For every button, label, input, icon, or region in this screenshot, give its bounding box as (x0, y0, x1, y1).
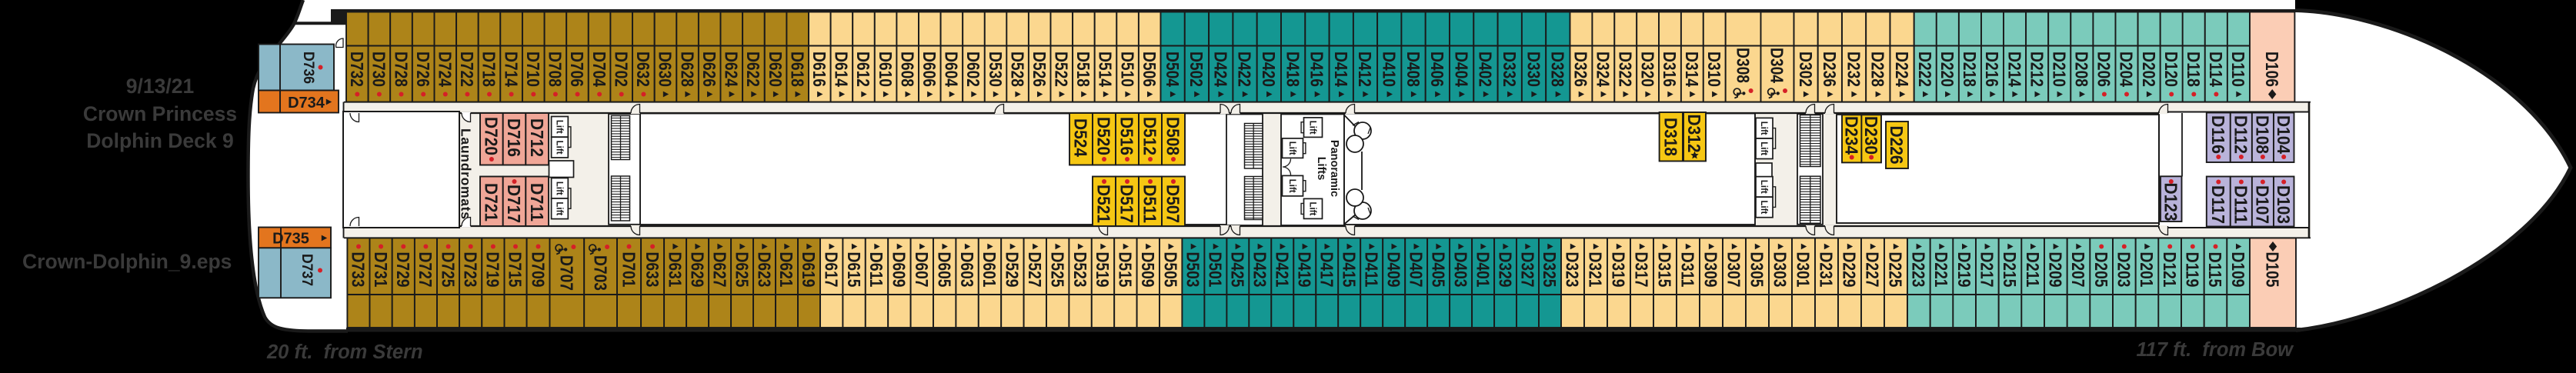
svg-text:D632: D632 (633, 52, 653, 87)
svg-text:D716: D716 (504, 118, 524, 157)
svg-text:D518: D518 (1073, 52, 1093, 87)
svg-text:D305: D305 (1747, 252, 1767, 288)
svg-text:D401: D401 (1473, 252, 1493, 288)
svg-text:D105: D105 (2263, 252, 2283, 288)
svg-text:D204: D204 (2117, 52, 2137, 87)
svg-text:D208: D208 (2072, 52, 2092, 87)
svg-text:D303: D303 (1770, 252, 1790, 288)
svg-text:D227: D227 (1863, 252, 1883, 288)
svg-text:D320: D320 (1637, 52, 1657, 87)
svg-text:D106: D106 (2262, 52, 2282, 87)
svg-text:D109: D109 (2228, 252, 2248, 288)
svg-text:D517: D517 (1117, 185, 1137, 223)
svg-text:D324: D324 (1593, 52, 1613, 87)
svg-text:D322: D322 (1615, 52, 1635, 87)
svg-text:D630: D630 (656, 52, 676, 87)
svg-text:D220: D220 (1937, 52, 1957, 87)
svg-text:D236: D236 (1820, 52, 1840, 87)
svg-text:D307: D307 (1724, 252, 1744, 288)
svg-text:D312: D312 (1684, 115, 1704, 153)
svg-text:D225: D225 (1886, 252, 1906, 288)
svg-text:D326: D326 (1571, 52, 1591, 87)
svg-text:D514: D514 (1096, 52, 1116, 87)
svg-text:D215: D215 (2000, 252, 2020, 288)
svg-text:D628: D628 (677, 52, 697, 87)
svg-text:D707: D707 (557, 255, 577, 291)
svg-text:D727: D727 (415, 252, 435, 288)
svg-text:D512: D512 (1140, 117, 1160, 155)
svg-text:D717: D717 (504, 185, 524, 223)
svg-text:D606: D606 (919, 52, 939, 87)
svg-text:D229: D229 (1840, 252, 1860, 288)
svg-text:D119: D119 (2183, 252, 2203, 288)
svg-text:D629: D629 (687, 252, 707, 288)
svg-text:D405: D405 (1428, 252, 1448, 288)
svg-text:D403: D403 (1450, 252, 1470, 288)
svg-text:D221: D221 (1931, 252, 1951, 288)
svg-text:D108: D108 (2253, 115, 2273, 154)
svg-text:D118: D118 (2184, 52, 2204, 87)
svg-text:D419: D419 (1295, 252, 1315, 288)
svg-text:D612: D612 (853, 52, 873, 87)
svg-text:D117: D117 (2208, 185, 2228, 224)
svg-text:D710: D710 (523, 52, 543, 87)
svg-text:D311: D311 (1678, 252, 1698, 288)
svg-text:D402: D402 (1476, 52, 1496, 87)
svg-text:D406: D406 (1427, 52, 1447, 87)
svg-text:D620: D620 (766, 52, 786, 87)
svg-text:D528: D528 (1007, 52, 1027, 87)
svg-text:D314: D314 (1682, 52, 1702, 87)
svg-text:D724: D724 (435, 52, 455, 87)
svg-text:D524: D524 (1071, 118, 1091, 157)
svg-text:D619: D619 (799, 252, 819, 288)
svg-text:D212: D212 (2027, 52, 2047, 87)
svg-text:Lifts: Lifts (1315, 157, 1327, 181)
svg-text:D607: D607 (912, 252, 932, 288)
svg-text:D424: D424 (1211, 52, 1231, 87)
svg-text:D723: D723 (460, 252, 480, 288)
svg-text:D210: D210 (2050, 52, 2070, 87)
svg-text:D718: D718 (479, 52, 499, 87)
svg-text:D614: D614 (832, 52, 852, 87)
svg-text:D526: D526 (1029, 52, 1049, 87)
svg-text:Lift: Lift (1287, 179, 1296, 193)
svg-text:D622: D622 (743, 52, 763, 87)
svg-text:D216: D216 (1982, 52, 2002, 87)
svg-text:D726: D726 (413, 52, 433, 87)
svg-text:D327: D327 (1517, 252, 1537, 288)
svg-text:D617: D617 (821, 252, 841, 288)
svg-text:D529: D529 (1003, 252, 1023, 288)
svg-text:Lift: Lift (1287, 142, 1296, 155)
svg-text:D111: D111 (2231, 185, 2251, 224)
svg-text:D115: D115 (2205, 252, 2225, 288)
svg-text:D729: D729 (393, 252, 413, 288)
svg-text:D209: D209 (2046, 252, 2066, 288)
svg-text:9/13/21: 9/13/21 (126, 75, 194, 98)
svg-text:D715: D715 (506, 252, 526, 288)
svg-text:D218: D218 (1960, 52, 1980, 87)
svg-text:D626: D626 (699, 52, 719, 87)
svg-text:D602: D602 (963, 52, 983, 87)
svg-text:Lift: Lift (1759, 122, 1768, 135)
svg-text:D330: D330 (1523, 52, 1543, 87)
svg-text:D414: D414 (1331, 52, 1351, 87)
svg-text:D621: D621 (776, 252, 796, 288)
svg-text:D112: D112 (2231, 115, 2251, 154)
svg-text:D603: D603 (957, 252, 977, 288)
svg-text:D520: D520 (1094, 117, 1114, 155)
svg-text:D633: D633 (642, 252, 662, 288)
svg-text:D107: D107 (2253, 185, 2273, 224)
svg-text:D110: D110 (2228, 52, 2248, 87)
svg-text:D409: D409 (1383, 252, 1403, 288)
svg-text:D232: D232 (1844, 52, 1864, 87)
svg-text:D502: D502 (1186, 52, 1206, 87)
svg-text:D709: D709 (528, 252, 548, 288)
svg-text:D116: D116 (2208, 115, 2228, 154)
svg-text:D302: D302 (1796, 52, 1816, 87)
svg-text:D711: D711 (527, 183, 547, 221)
svg-text:D507: D507 (1163, 185, 1183, 223)
svg-text:D737: D737 (299, 254, 315, 286)
svg-text:D719: D719 (483, 252, 503, 288)
svg-text:D523: D523 (1070, 252, 1090, 288)
svg-text:D318: D318 (1661, 118, 1681, 156)
svg-text:D234: D234 (1841, 116, 1861, 155)
svg-text:D505: D505 (1160, 252, 1180, 288)
svg-text:D418: D418 (1283, 52, 1303, 87)
svg-text:D732: D732 (347, 52, 367, 87)
svg-text:Lift: Lift (554, 201, 563, 215)
svg-text:D422: D422 (1235, 52, 1255, 87)
svg-text:Lift: Lift (554, 141, 563, 155)
svg-text:D704: D704 (589, 52, 609, 87)
svg-text:20 ft. from Stern: 20 ft. from Stern (266, 341, 423, 363)
svg-text:D203: D203 (2114, 252, 2134, 288)
svg-text:D510: D510 (1117, 52, 1137, 87)
svg-text:D521: D521 (1094, 185, 1114, 223)
svg-text:D516: D516 (1117, 117, 1137, 155)
svg-text:D527: D527 (1025, 252, 1045, 288)
svg-text:D722: D722 (457, 52, 477, 87)
svg-text:D226: D226 (1887, 126, 1907, 165)
svg-text:D321: D321 (1586, 252, 1606, 288)
svg-text:D224: D224 (1892, 52, 1912, 87)
svg-text:D230: D230 (1861, 116, 1881, 155)
svg-text:D304: D304 (1767, 48, 1787, 83)
svg-text:D415: D415 (1339, 252, 1359, 288)
svg-text:Lift: Lift (554, 120, 563, 134)
svg-text:D712: D712 (527, 118, 547, 157)
svg-text:D525: D525 (1047, 252, 1067, 288)
svg-text:D123: D123 (2161, 183, 2181, 221)
svg-text:D610: D610 (876, 52, 896, 87)
svg-text:D120: D120 (2161, 52, 2181, 87)
svg-text:D316: D316 (1660, 52, 1680, 87)
svg-text:Panoramic: Panoramic (1328, 140, 1340, 197)
svg-text:D207: D207 (2068, 252, 2088, 288)
svg-text:D511: D511 (1140, 185, 1160, 223)
svg-text:D608: D608 (897, 52, 917, 87)
svg-text:D417: D417 (1317, 252, 1337, 288)
svg-text:D310: D310 (1704, 52, 1724, 87)
svg-text:D701: D701 (619, 252, 639, 288)
svg-text:D501: D501 (1206, 252, 1226, 288)
svg-text:D708: D708 (546, 52, 566, 87)
svg-text:Lift: Lift (1307, 201, 1316, 215)
svg-text:D114: D114 (2206, 52, 2226, 87)
svg-text:D407: D407 (1406, 252, 1426, 288)
svg-text:D734: D734 (288, 95, 325, 112)
svg-text:D410: D410 (1380, 52, 1400, 87)
svg-text:Lift: Lift (1759, 200, 1768, 214)
svg-text:D721: D721 (482, 183, 502, 221)
svg-text:D609: D609 (889, 252, 909, 288)
svg-text:D421: D421 (1273, 252, 1293, 288)
svg-text:117 ft. from Bow: 117 ft. from Bow (2136, 339, 2294, 361)
svg-text:D615: D615 (844, 252, 864, 288)
svg-text:D205: D205 (2091, 252, 2111, 288)
svg-text:D730: D730 (369, 52, 389, 87)
svg-text:D423: D423 (1250, 252, 1270, 288)
svg-text:D211: D211 (2023, 252, 2043, 288)
svg-text:D733: D733 (349, 252, 369, 288)
svg-text:D309: D309 (1701, 252, 1721, 288)
svg-text:D616: D616 (809, 52, 829, 87)
svg-text:Lift: Lift (1759, 142, 1768, 155)
svg-text:D317: D317 (1632, 252, 1652, 288)
svg-text:D319: D319 (1609, 252, 1629, 288)
svg-text:D228: D228 (1868, 52, 1888, 87)
svg-text:Lift: Lift (1307, 121, 1316, 135)
svg-text:D103: D103 (2274, 185, 2294, 224)
svg-text:D223: D223 (1909, 252, 1929, 288)
svg-text:D412: D412 (1355, 52, 1375, 87)
svg-text:D601: D601 (979, 252, 999, 288)
svg-text:D604: D604 (942, 52, 962, 87)
svg-text:D519: D519 (1093, 252, 1113, 288)
svg-text:Lift: Lift (554, 182, 563, 195)
svg-text:D121: D121 (2160, 252, 2180, 288)
svg-text:D503: D503 (1183, 252, 1203, 288)
svg-text:D714: D714 (501, 52, 521, 87)
svg-text:D627: D627 (709, 252, 729, 288)
svg-text:D315: D315 (1655, 252, 1675, 288)
svg-text:D219: D219 (1954, 252, 1974, 288)
svg-text:Crown Princess: Crown Princess (83, 102, 237, 125)
svg-text:D509: D509 (1138, 252, 1158, 288)
svg-text:D728: D728 (391, 52, 411, 87)
svg-text:D328: D328 (1548, 52, 1568, 87)
svg-text:D605: D605 (934, 252, 954, 288)
svg-text:D416: D416 (1307, 52, 1327, 87)
svg-text:D404: D404 (1451, 52, 1471, 87)
svg-text:D625: D625 (732, 252, 752, 288)
svg-text:D506: D506 (1140, 52, 1160, 87)
svg-text:D731: D731 (371, 252, 391, 288)
svg-text:D515: D515 (1116, 252, 1136, 288)
svg-text:D201: D201 (2137, 252, 2157, 288)
svg-text:D214: D214 (2004, 52, 2024, 87)
svg-text:D631: D631 (665, 252, 685, 288)
svg-text:D420: D420 (1259, 52, 1279, 87)
svg-text:Crown-Dolphin_9.eps: Crown-Dolphin_9.eps (22, 250, 232, 273)
svg-text:D408: D408 (1403, 52, 1423, 87)
svg-text:D522: D522 (1052, 52, 1072, 87)
svg-text:D301: D301 (1794, 252, 1814, 288)
svg-text:D411: D411 (1361, 252, 1381, 288)
svg-text:D329: D329 (1495, 252, 1515, 288)
svg-text:D736: D736 (300, 52, 317, 84)
svg-text:D202: D202 (2139, 52, 2159, 87)
svg-text:D618: D618 (787, 52, 807, 87)
svg-text:D104: D104 (2274, 115, 2294, 154)
svg-text:D703: D703 (590, 255, 610, 291)
svg-text:D206: D206 (2094, 52, 2114, 87)
svg-text:D623: D623 (754, 252, 774, 288)
svg-text:D504: D504 (1163, 52, 1183, 87)
svg-text:Laundromats: Laundromats (459, 128, 474, 219)
svg-text:D323: D323 (1563, 252, 1583, 288)
svg-text:D508: D508 (1163, 117, 1183, 155)
svg-text:D425: D425 (1228, 252, 1248, 288)
svg-text:D530: D530 (986, 52, 1006, 87)
svg-text:Lift: Lift (1759, 180, 1768, 194)
svg-text:D735: D735 (272, 231, 309, 248)
svg-text:D222: D222 (1915, 52, 1935, 87)
svg-text:D725: D725 (438, 252, 458, 288)
svg-text:D702: D702 (612, 52, 632, 87)
svg-text:D325: D325 (1540, 252, 1560, 288)
svg-text:D720: D720 (482, 117, 502, 155)
svg-text:D611: D611 (866, 252, 886, 288)
svg-text:D706: D706 (567, 52, 587, 87)
svg-text:D624: D624 (722, 52, 742, 87)
svg-text:Dolphin Deck 9: Dolphin Deck 9 (86, 129, 233, 152)
svg-text:D217: D217 (1977, 252, 1997, 288)
svg-text:D231: D231 (1817, 252, 1837, 288)
svg-text:D308: D308 (1733, 48, 1753, 83)
svg-text:D332: D332 (1500, 52, 1520, 87)
